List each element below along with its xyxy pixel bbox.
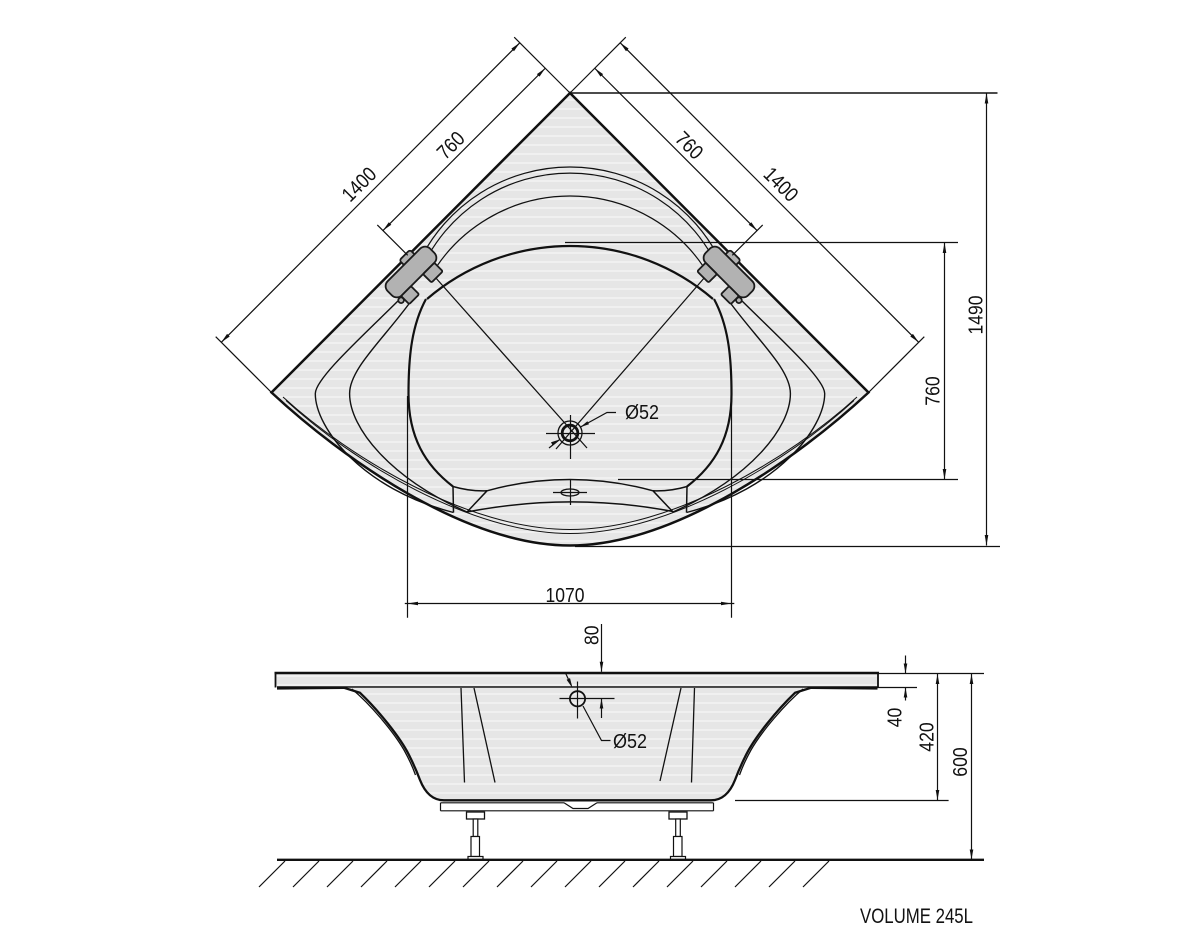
- svg-text:40: 40: [884, 708, 907, 728]
- svg-text:1070: 1070: [546, 584, 585, 607]
- svg-text:600: 600: [949, 747, 972, 777]
- svg-text:1400: 1400: [759, 163, 803, 207]
- svg-text:1490: 1490: [964, 296, 987, 335]
- svg-text:VOLUME 245L: VOLUME 245L: [860, 905, 973, 928]
- svg-text:Ø52: Ø52: [613, 730, 647, 753]
- svg-text:Ø52: Ø52: [625, 401, 659, 424]
- svg-text:80: 80: [581, 625, 604, 645]
- svg-text:760: 760: [432, 127, 469, 164]
- svg-text:760: 760: [922, 376, 945, 406]
- svg-text:760: 760: [670, 127, 707, 164]
- svg-text:1400: 1400: [337, 163, 381, 207]
- svg-text:420: 420: [916, 722, 939, 752]
